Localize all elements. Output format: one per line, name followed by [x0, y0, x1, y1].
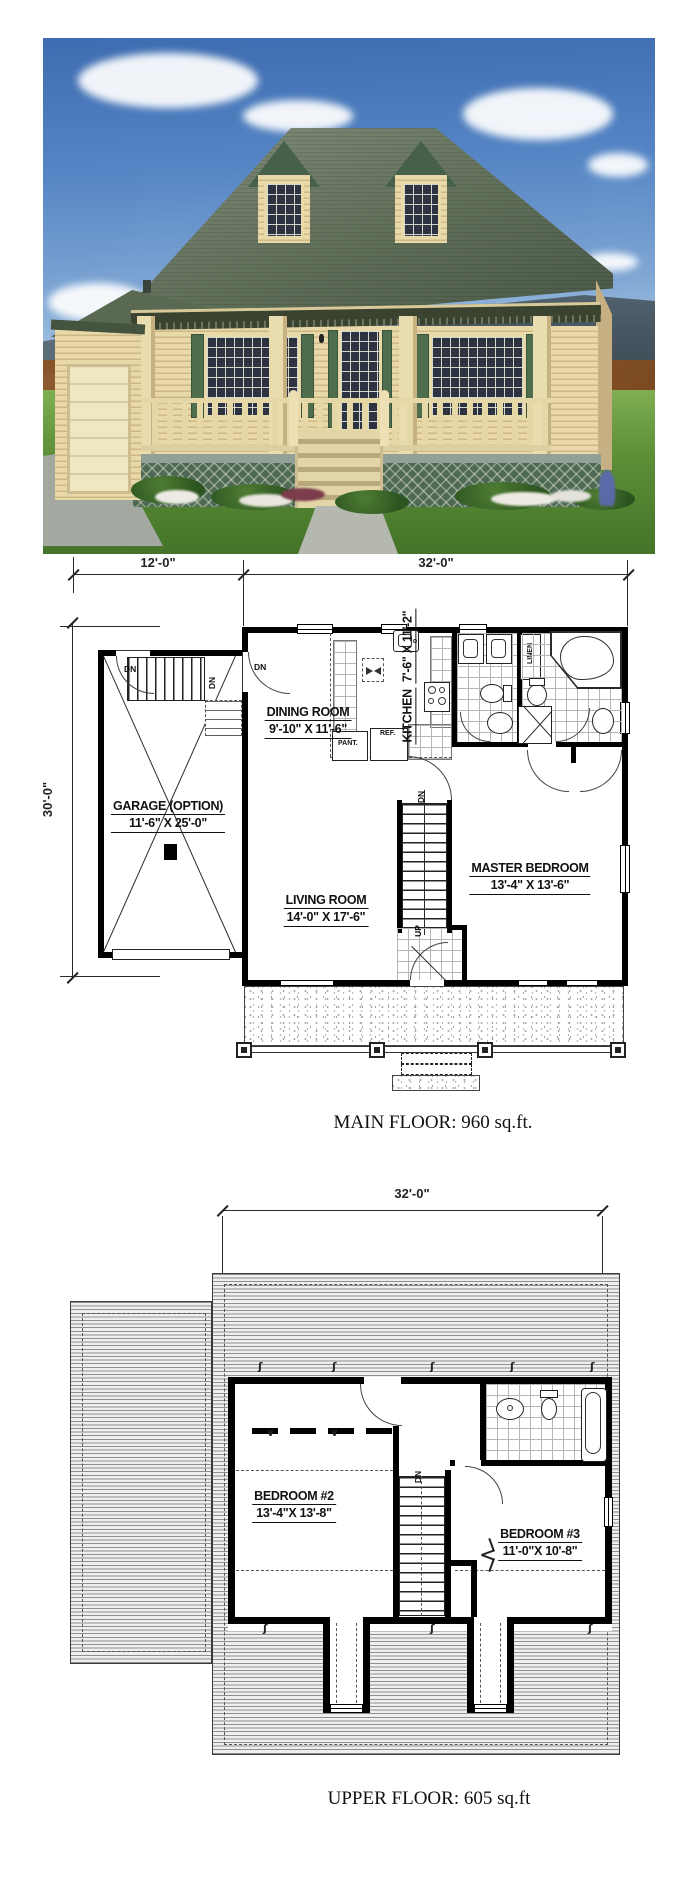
porch-step [401, 1064, 472, 1075]
bedroom3-label: BEDROOM #3 11'-0"X 10'-8" [498, 1526, 582, 1561]
ext-line [73, 557, 74, 593]
garage-door [67, 364, 131, 494]
hall-door-arc [408, 756, 452, 800]
toilet-tank [540, 1390, 558, 1398]
porch-post [610, 1042, 626, 1058]
bush [335, 490, 409, 514]
upper-bath-door-gap [455, 1460, 481, 1466]
upper-wall-left [228, 1377, 235, 1624]
hall-opening [364, 1377, 401, 1384]
break-mark: ʃ [510, 1360, 515, 1373]
upper-wall-bottom [228, 1617, 612, 1624]
dormer-plan-right [467, 1617, 514, 1713]
ext-line [60, 976, 160, 977]
cloud [588, 153, 648, 177]
room-name: LIVING ROOM [284, 892, 369, 909]
dn-label-dining: DN [254, 662, 266, 672]
break-mark: ʃ [258, 1360, 263, 1373]
main-dim-line [73, 574, 628, 575]
ext-line [602, 1216, 603, 1273]
porch-post [477, 1042, 493, 1058]
dormer-plan-left [323, 1617, 370, 1713]
room-name: BEDROOM #3 [498, 1526, 582, 1543]
chimney-vent [143, 280, 151, 293]
break-mark: ʃ [430, 1360, 435, 1373]
main-vdim-line [72, 623, 73, 978]
kneewall-line [236, 1570, 393, 1571]
break-mark: ʃ [430, 1622, 435, 1635]
porch-step [401, 1053, 472, 1064]
window [620, 845, 630, 893]
shower-icon [518, 706, 552, 744]
master-bedroom-label: MASTER BEDROOM 13'-4" X 13'-6" [469, 860, 590, 895]
room-size: 13'-4"X 13'-8" [252, 1505, 336, 1522]
ext-line [222, 1216, 223, 1273]
entry-stairs-lower [205, 700, 242, 736]
washer-icon [458, 634, 484, 664]
closet-door-arc [580, 750, 622, 792]
bedroom3-wall [471, 1566, 477, 1617]
kneewall-line [455, 1570, 605, 1571]
sink-icon [592, 708, 614, 734]
upper-dim-line [222, 1210, 602, 1211]
main-dim-height-label: 30'-0" [40, 782, 55, 817]
stair-rail-dashed [421, 1476, 422, 1616]
room-size: 11'-0"X 10'-8" [498, 1543, 582, 1560]
hall-wall [393, 1426, 399, 1476]
upper-stairs [399, 1476, 445, 1616]
room-size: 11'-6" X 25'-0" [111, 815, 225, 832]
toilet-icon [527, 684, 547, 706]
toilet-icon [480, 684, 504, 703]
corner-tub-basin [560, 636, 614, 680]
dishwasher-icon [362, 658, 384, 682]
toilet-icon [541, 1398, 557, 1420]
bedroom2-label: BEDROOM #2 13'-4"X 13'-8" [252, 1488, 336, 1523]
room-name: KITCHEN [399, 687, 416, 744]
step-newel [380, 390, 389, 446]
white-flowers [551, 490, 591, 502]
step-newel [289, 390, 298, 446]
porch-rail [244, 1046, 624, 1053]
kitchen-label: KITCHEN 7'-6" X 11'-2" [399, 625, 416, 745]
white-flowers [491, 492, 557, 506]
room-name: MASTER BEDROOM [469, 860, 590, 877]
break-mark: ʃ [263, 1622, 268, 1635]
ext-line [627, 560, 628, 626]
up-label: UP [413, 925, 423, 937]
window [297, 624, 333, 634]
stove-icon [424, 682, 450, 712]
porch-light [319, 334, 324, 343]
break-mark: ʃ [590, 1360, 595, 1373]
room-size: 9'-10" X 11'-6" [265, 721, 352, 738]
room-name: DINING ROOM [265, 704, 352, 721]
house-photo [43, 38, 655, 554]
dormer-window [264, 181, 304, 239]
dn-label-garage: DN [124, 664, 136, 674]
upper-stair-wall-right [445, 1470, 451, 1620]
room-name: GARAGE (OPTION) [111, 798, 225, 815]
foyer-wall [462, 925, 467, 986]
house-wall-right [622, 627, 628, 986]
room-size: 13'-4" X 13'-6" [469, 877, 590, 894]
sink-icon [487, 712, 513, 734]
porch-step-base [392, 1075, 480, 1091]
garage-center-post [164, 844, 177, 860]
main-floor-caption: MAIN FLOOR: 960 sq.ft. [334, 1112, 533, 1134]
dormer-right [385, 141, 457, 243]
white-flowers [155, 490, 199, 504]
closet-post [571, 747, 576, 763]
living-room-label: LIVING ROOM 14'-0" X 17'-6" [284, 892, 369, 927]
room-size: 14'-0" X 17'-6" [284, 909, 369, 926]
dormer-window-plan [330, 1704, 363, 1713]
dining-room-label: DINING ROOM 9'-10" X 11'-6" [265, 704, 352, 739]
porch-post [236, 1042, 252, 1058]
room-size: 7'-6" X 11'-2" [399, 609, 416, 684]
garage-roof-wall-dashed [82, 1313, 206, 1652]
stair-rail [424, 790, 425, 935]
dormer-window [401, 181, 441, 239]
dn-label-stair: DN [207, 677, 217, 689]
toilet-tank [503, 685, 512, 702]
porch-post [369, 1042, 385, 1058]
closet-door-arc [527, 750, 569, 792]
cloud [78, 53, 258, 108]
upper-floor-caption: UPPER FLOOR: 605 sq.ft [328, 1788, 531, 1810]
upper-bath-wall-left [480, 1384, 486, 1464]
sink-icon [496, 1398, 524, 1420]
upper-dim-label: 32'-0" [394, 1186, 429, 1201]
dining-door-gap [242, 652, 248, 692]
dormer-left [248, 141, 320, 243]
window-mark: ∨ [330, 1426, 339, 1439]
garage-door-plan [112, 949, 230, 960]
dryer-icon [486, 634, 512, 664]
upper-wall-top [228, 1377, 612, 1384]
page: { "palette": { "roof_green": "#5a6a52", … [0, 0, 684, 1902]
cloud [243, 100, 353, 132]
tall-plant [599, 470, 615, 506]
garage-wall-left [98, 650, 104, 958]
window-mark: ∨ [266, 1426, 275, 1439]
garage-label: GARAGE (OPTION) 11'-6" X 25'-0" [111, 798, 225, 833]
stair-wall-right [447, 800, 452, 933]
foyer-wall-stub [447, 925, 467, 930]
break-mark: ʃ [332, 1360, 337, 1373]
main-dim-right-label: 32'-0" [418, 555, 453, 570]
ext-line [60, 626, 160, 627]
fridge-label: REF. [380, 730, 395, 737]
cloud [463, 88, 613, 140]
garage-entry-door-arc [116, 656, 154, 694]
kneewall-line [236, 1470, 393, 1471]
ext-line [243, 560, 244, 626]
window [604, 1497, 613, 1527]
porch [244, 986, 624, 1046]
main-dim-left-label: 12'-0" [140, 555, 175, 570]
bathtub-icon [581, 1388, 607, 1462]
toilet-tank [529, 678, 545, 686]
dn-label-upper: DN [413, 1471, 423, 1483]
dining-door-arc [248, 652, 290, 694]
break-mark: ʃ [588, 1622, 593, 1635]
red-flowers [281, 488, 325, 501]
room-name: BEDROOM #2 [252, 1488, 336, 1505]
pantry-label: PANT. [338, 740, 358, 747]
dormer-window-plan [474, 1704, 507, 1713]
